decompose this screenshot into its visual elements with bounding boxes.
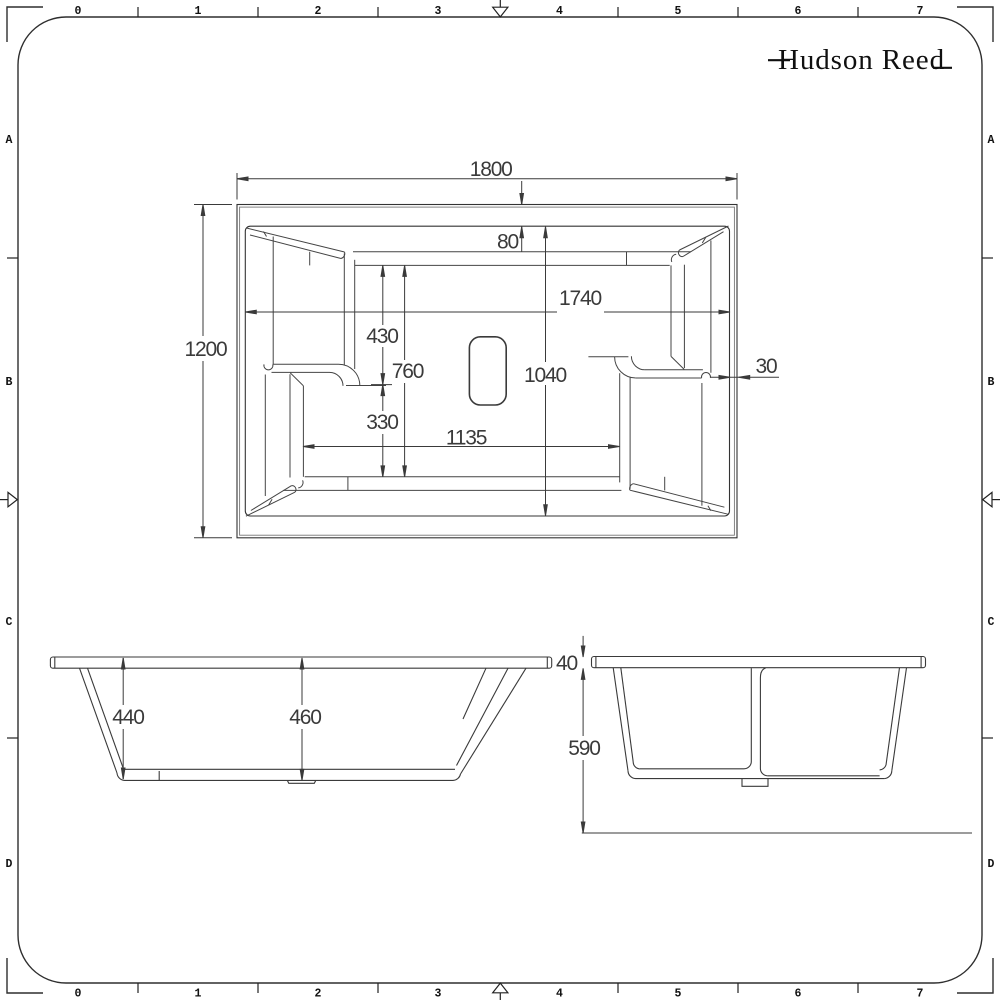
svg-text:0: 0 [75, 988, 82, 1000]
svg-text:7: 7 [917, 5, 924, 18]
svg-text:440: 440 [112, 706, 144, 729]
svg-text:A: A [988, 134, 995, 147]
svg-text:30: 30 [756, 355, 777, 378]
svg-text:80: 80 [497, 231, 518, 254]
svg-text:330: 330 [366, 411, 398, 434]
svg-text:4: 4 [556, 988, 563, 1000]
svg-text:Hudson Reed: Hudson Reed [778, 44, 945, 76]
svg-text:6: 6 [795, 5, 802, 18]
svg-text:590: 590 [568, 737, 600, 760]
svg-text:0: 0 [75, 5, 82, 18]
svg-text:1: 1 [195, 988, 202, 1000]
svg-text:3: 3 [435, 5, 442, 18]
svg-text:C: C [6, 616, 13, 629]
svg-text:760: 760 [392, 360, 424, 383]
svg-text:B: B [6, 376, 13, 389]
svg-text:B: B [988, 376, 995, 389]
svg-text:1135: 1135 [446, 427, 487, 450]
svg-text:5: 5 [675, 5, 682, 18]
svg-text:1800: 1800 [470, 158, 512, 181]
svg-text:6: 6 [795, 988, 802, 1000]
svg-text:C: C [988, 616, 995, 629]
svg-text:1200: 1200 [185, 338, 227, 361]
svg-text:D: D [988, 858, 995, 871]
svg-text:460: 460 [289, 706, 321, 729]
svg-text:1: 1 [195, 5, 202, 18]
svg-text:430: 430 [366, 325, 398, 348]
svg-text:4: 4 [556, 5, 563, 18]
svg-text:1740: 1740 [559, 287, 601, 310]
svg-text:7: 7 [917, 988, 924, 1000]
svg-text:5: 5 [675, 988, 682, 1000]
svg-text:D: D [6, 858, 13, 871]
svg-text:1040: 1040 [524, 364, 566, 387]
svg-text:A: A [6, 134, 13, 147]
svg-text:3: 3 [435, 988, 442, 1000]
svg-text:40: 40 [556, 652, 577, 675]
svg-text:2: 2 [315, 5, 322, 18]
svg-text:2: 2 [315, 988, 322, 1000]
